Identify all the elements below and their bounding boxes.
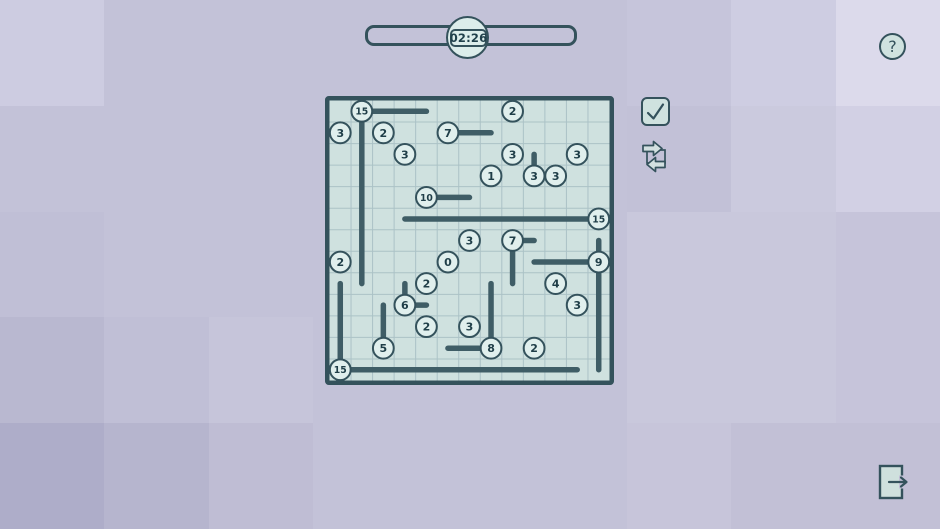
clue-value: 4 — [552, 278, 560, 291]
puzzle-board-svg[interactable]: 15232733313310153720924632358215 — [325, 96, 614, 385]
clue-value: 2 — [380, 127, 388, 140]
exit-door-icon — [880, 466, 907, 498]
background-tile — [731, 317, 836, 423]
timer-value: 02:26 — [450, 29, 487, 47]
background-tile — [522, 0, 627, 106]
clue-value: 5 — [380, 342, 388, 355]
background-tile — [313, 0, 418, 106]
background-tile — [627, 317, 732, 423]
clue-value: 3 — [466, 321, 474, 334]
background-tile — [0, 0, 105, 106]
shuffle-button[interactable] — [641, 140, 669, 174]
background-tile — [209, 212, 314, 318]
background-tile — [0, 212, 105, 318]
clue-value: 7 — [509, 234, 517, 247]
clue-value: 2 — [423, 278, 431, 291]
clue-value: 3 — [552, 170, 560, 183]
clue-value: 1 — [487, 170, 495, 183]
exit-button[interactable] — [872, 461, 912, 503]
background-tile — [0, 317, 105, 423]
background-tile — [418, 423, 523, 529]
background-tile — [522, 423, 627, 529]
clue-value: 3 — [466, 234, 474, 247]
game-screen: { "timer": { "value": "02:26" }, "help":… — [0, 0, 940, 529]
clue-value: 0 — [444, 256, 452, 269]
background-tile — [627, 0, 732, 106]
background-tile — [209, 423, 314, 529]
clue-value: 15 — [592, 214, 605, 225]
question-mark-icon: ? — [888, 39, 897, 55]
clue-value: 3 — [401, 148, 409, 161]
checkmark-icon — [643, 99, 668, 124]
background-tile — [836, 212, 940, 318]
background-tile — [731, 423, 836, 529]
clue-value: 8 — [487, 342, 495, 355]
background-tile — [104, 0, 209, 106]
background-tile — [627, 423, 732, 529]
background-tile — [836, 317, 940, 423]
background-tile — [731, 0, 836, 106]
background-tile — [0, 423, 105, 529]
background-tile — [731, 106, 836, 212]
background-tile — [731, 212, 836, 318]
clue-value: 2 — [423, 321, 431, 334]
background-tile — [627, 212, 732, 318]
clue-value: 15 — [355, 107, 368, 118]
background-tile — [313, 423, 418, 529]
background-tile — [104, 423, 209, 529]
clue-value: 7 — [444, 127, 452, 140]
background-tile — [209, 0, 314, 106]
clue-value: 2 — [530, 342, 538, 355]
puzzle-board[interactable]: 15232733313310153720924632358215 — [325, 96, 614, 385]
clue-value: 3 — [573, 148, 581, 161]
background-tile — [836, 106, 940, 212]
check-button[interactable] — [641, 97, 670, 126]
clue-value: 2 — [336, 256, 344, 269]
help-button[interactable]: ? — [879, 33, 906, 60]
clue-value: 3 — [336, 127, 344, 140]
background-tile — [104, 212, 209, 318]
clue-value: 9 — [595, 256, 603, 269]
background-tile — [209, 106, 314, 212]
clue-value: 2 — [509, 105, 517, 118]
background-tile — [104, 317, 209, 423]
clue-value: 3 — [530, 170, 538, 183]
clue-value: 10 — [420, 193, 433, 204]
background-tile — [104, 106, 209, 212]
clue-value: 3 — [509, 148, 517, 161]
clue-value: 6 — [401, 299, 409, 312]
background-tile — [0, 106, 105, 212]
clue-value: 3 — [573, 299, 581, 312]
background-tile — [209, 317, 314, 423]
swap-arrows-icon — [643, 142, 665, 172]
clue-value: 15 — [334, 365, 347, 376]
